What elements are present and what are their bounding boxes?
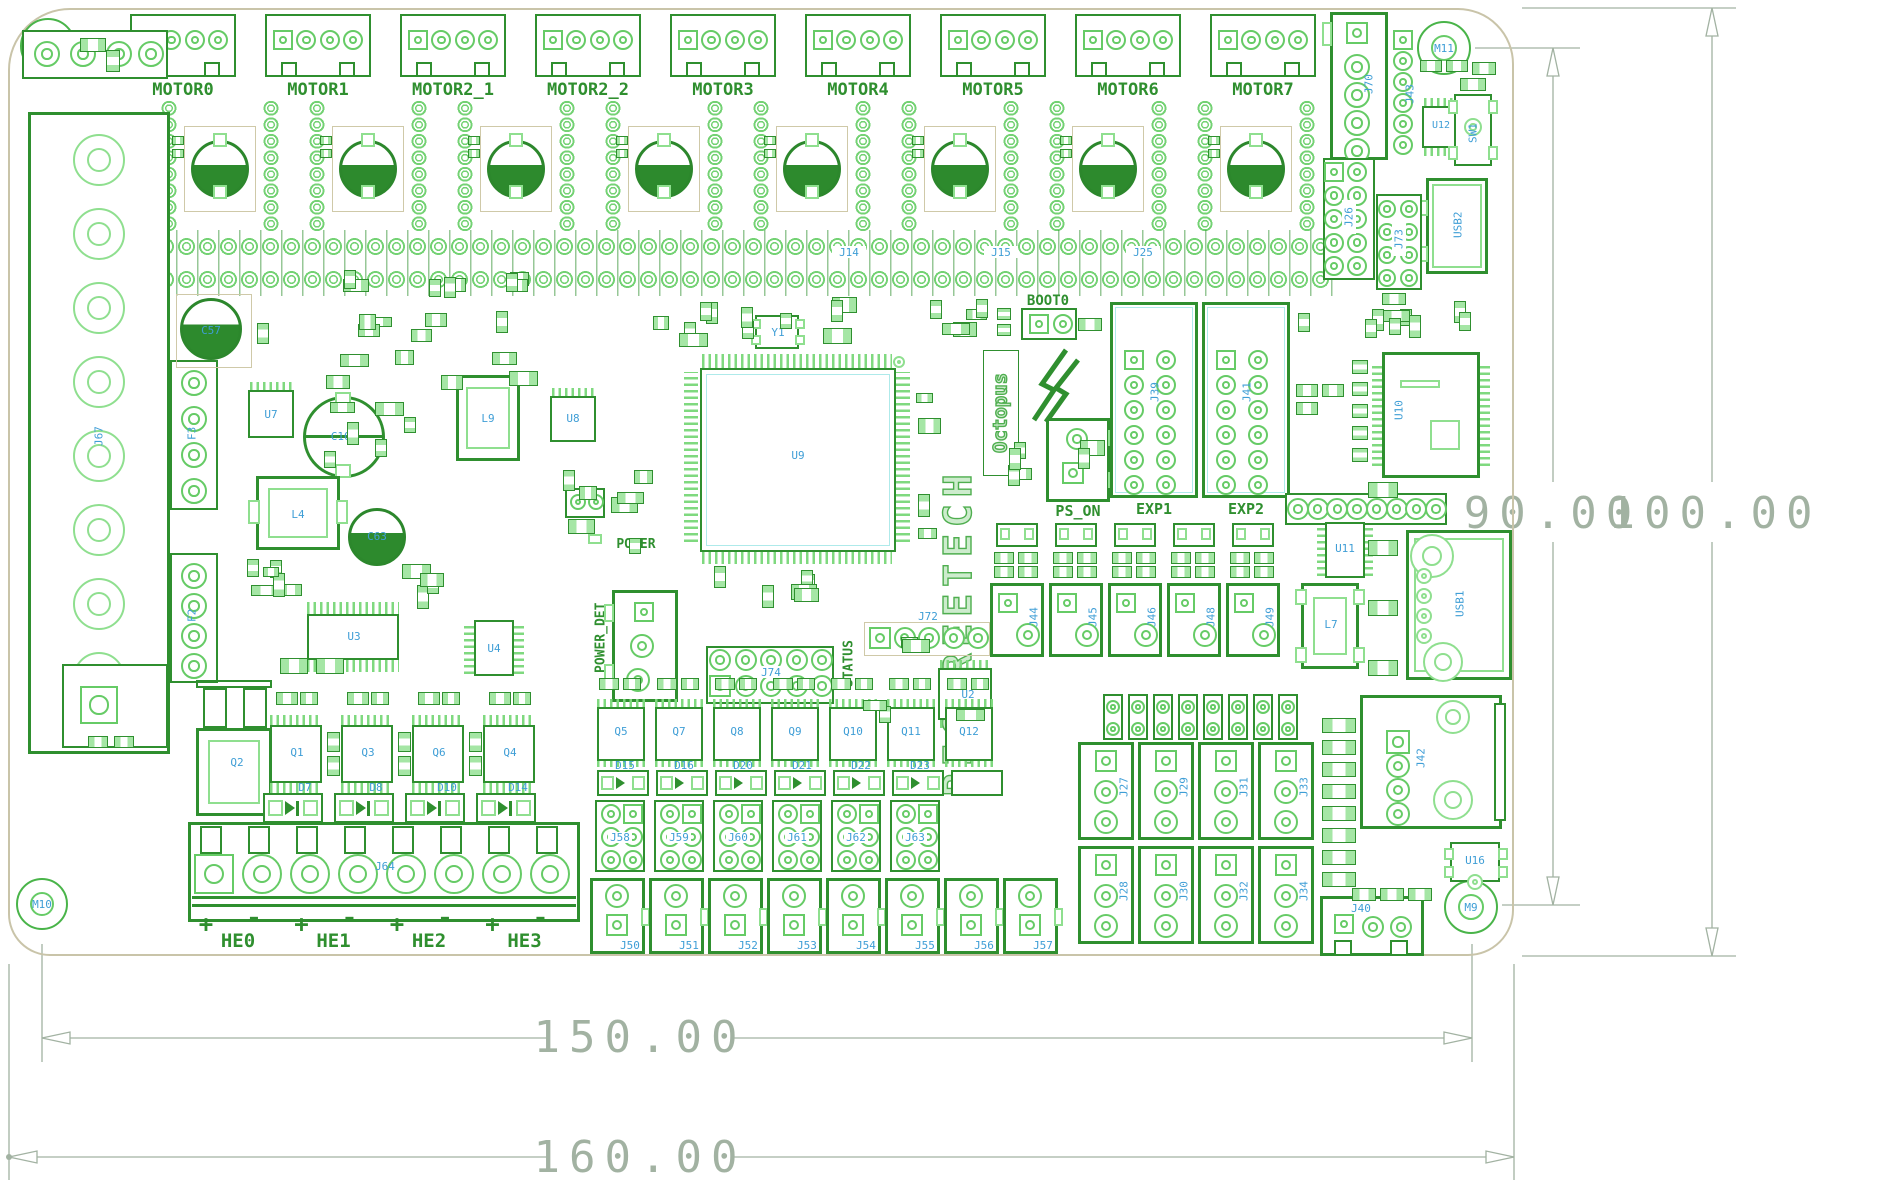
mosfet-pins [341,715,393,725]
mosfet-pins [597,699,645,707]
motor-pin-1 [813,30,833,50]
motor-connector-notch [744,62,760,77]
heater-polarity-plus: + [196,914,216,934]
smd-component [599,678,619,690]
diode-ref: D21 [790,760,814,770]
fan-output-pad [724,914,746,936]
smd-component-v [469,756,482,776]
motor-label: MOTOR2_2 [523,82,653,98]
smd-component [739,678,757,690]
diode-ref: D15 [613,760,637,770]
transistor-die [208,740,260,804]
smd-component-v [398,732,411,752]
smd-component [797,678,815,690]
smd-component [88,736,108,748]
header-ref: J73 [1392,222,1406,256]
motor-label: MOTOR2_1 [388,82,518,98]
mcu-pin1-marker [893,356,905,368]
power-terminal-hole [73,282,125,334]
smd-component [889,678,909,690]
ic-ref: U10 [1392,392,1406,428]
mounting-hole-ref: M10 [16,898,68,910]
endstop-pad [1155,750,1177,772]
header-pad [1324,162,1344,182]
smd-component [1322,740,1356,755]
header-ref: J72 [915,610,941,622]
fan-header-pin [601,804,621,824]
smd-component [1368,482,1398,498]
motor-connector-notch [416,62,432,77]
diode-pad [1201,528,1211,540]
smd-component [347,692,369,705]
diode-pad [339,800,354,816]
ic-pins [250,382,292,390]
endstop-ref: J30 [1178,874,1190,908]
smd-component-v [496,311,508,334]
motor-connector-notch [821,62,837,77]
endstop-pin [1154,914,1178,938]
ic-pins [1480,364,1490,466]
fan-output-pin [959,884,983,908]
fan-output-pin [664,884,688,908]
fan-header-pin [719,804,739,824]
fan-header-pin [896,804,916,824]
cap-ref: C57 [196,324,226,336]
ic-detail [1430,420,1460,450]
motor-pin [725,30,745,50]
ic-pins [514,622,524,674]
smd-component [441,375,463,389]
smd-component-v [714,566,726,588]
diode-glyph [427,801,437,815]
smd-component [1352,888,1376,901]
smd-component [359,314,376,330]
smd-component [320,149,332,158]
diode-pad [1177,528,1187,540]
smd-component [764,136,776,145]
smd-component [715,678,735,690]
diode-pad [927,776,940,790]
motor-connector-notch [551,62,567,77]
diode-pad [445,800,460,816]
motor-connector-notch [609,62,625,77]
heater-terminal-notch [296,826,318,854]
driver-socket-strip [1044,100,1070,232]
inductor-pad [1295,647,1307,663]
power-terminal-hole [73,578,125,630]
smd-component [657,678,677,690]
diode-pad [601,776,614,790]
diode-pad [632,776,645,790]
connector-ref: J70 [1362,66,1376,102]
endstop-ref: J32 [1238,874,1250,908]
thermistor-pad [1057,593,1077,613]
driver-socket-strip [1146,100,1172,232]
power-det-pin [630,634,654,658]
driver-socket-strip [452,100,478,232]
heater-terminal-hole [434,854,474,894]
heater-terminal-hole [482,854,522,894]
header-pin [1378,200,1396,218]
ic-ref: U7 [260,408,282,420]
heater-polarity-minus: - [531,908,551,928]
ic-pad [1444,848,1454,860]
smd-component [918,418,940,434]
endstop-pin [1154,780,1178,804]
usb-pin [1416,628,1432,644]
heater-polarity-plus: + [292,914,312,934]
smd-component [1208,149,1220,158]
smd-component [823,328,853,344]
mosfet-pins [713,699,761,707]
transistor-tab [243,688,267,728]
header-pin [1425,498,1447,520]
header-pin [1393,135,1413,155]
smd-component-v [506,273,518,292]
fan-header-pin [859,850,879,870]
smd-component [568,519,596,534]
smd-component-v [1352,448,1368,462]
motor-label: MOTOR1 [253,82,383,98]
smd-component [1171,552,1191,564]
fan-header-pin [837,804,857,824]
fan-header-pin [778,804,798,824]
motor-label: MOTOR6 [1063,82,1193,98]
exp-pin [1248,475,1268,495]
smd-component [1296,402,1318,415]
smd-component [300,692,318,705]
driver-socket-strip [1294,100,1320,232]
ic-ref: U16 [1460,854,1490,866]
smd-component [513,692,531,705]
diode-pad [374,800,389,816]
motor-pin [995,30,1015,50]
smd-component-v [347,422,359,445]
mosfet-pins [887,699,935,707]
motor-pin [1130,30,1150,50]
exp-pad [1124,350,1144,370]
driver-socket-strip [998,100,1024,232]
smd-component-v [762,585,774,608]
fan-output-ref: J55 [913,940,937,950]
exp-pin [1156,475,1176,495]
transistor-tab [203,688,227,728]
endstop-pad [1275,750,1297,772]
diode-glyph [675,777,684,789]
motor-label: MOTOR0 [118,82,248,98]
cap-tab [805,185,819,199]
cap-tab [361,133,375,147]
cap-tab [1249,185,1263,199]
smd-component-v [780,313,792,329]
smd-component [1195,552,1215,564]
smd-component [316,658,344,674]
smd-component [489,692,511,705]
motor-pin-1 [1218,30,1238,50]
probe-pin [1131,700,1145,714]
smd-component-v [563,470,575,490]
diode-pad [778,776,791,790]
smd-component [80,38,106,52]
header-pin [1324,186,1344,206]
fan-output-pin [841,884,865,908]
smd-component [1382,293,1406,305]
power-det-tab [604,604,614,622]
motor-pin [455,30,475,50]
mosfet-ref: Q6 [428,746,450,758]
smd-component-v [918,494,930,517]
motor-pin-1 [948,30,968,50]
connector-pad [1334,914,1354,934]
card-pin [1386,778,1410,802]
btt-logo-icon [1024,336,1084,428]
smd-component-v [1365,319,1377,338]
fan-header-ref: J61 [785,832,809,843]
diode-glyph [734,777,743,789]
fan-header-pin [660,850,680,870]
heater-terminal-pad [194,854,234,894]
smd-component [114,736,134,748]
thermistor-pad [1234,593,1254,613]
fuse-ref-F3: F3 [186,418,198,448]
smd-component-v [741,307,753,328]
endstop-pad [1095,854,1117,876]
exp-pin [1156,450,1176,470]
boot0-pad [1029,314,1049,334]
heater-label: HE2 [399,932,459,950]
switch-pad [1448,100,1458,114]
diode-pad [268,800,283,816]
smd-component-v [327,732,340,752]
smd-component [1472,62,1496,75]
diode-ref: D22 [849,760,873,770]
probe-pin [1156,722,1170,736]
smd-component-v [1352,404,1368,418]
diode-pad [481,800,496,816]
fan-output-pad [665,914,687,936]
smd-component [681,678,699,690]
card-ref: J42 [1414,738,1428,778]
exp-pin [1216,475,1236,495]
fuse-ref-F2: F2 [186,600,198,630]
boot0-pin [1053,314,1073,334]
fan-output-ref: J56 [972,940,996,950]
fan-output-pad [606,914,628,936]
connector-notch [1390,940,1408,956]
smd-component-v [1409,315,1421,338]
driver-socket-strip [258,100,284,232]
motor-pin [590,30,610,50]
smd-component [1195,566,1215,578]
smd-component [442,692,460,705]
diode-pad [1236,528,1246,540]
mosfet-pins [655,699,703,707]
header-pin [709,649,731,671]
smd-component [616,149,628,158]
header-ref: J26 [1342,200,1356,234]
cap-tab [805,133,819,147]
motor-connector-notch [1284,62,1300,77]
smd-component [1322,828,1356,843]
exp-pin [1216,375,1236,395]
ic-ref: U4 [484,642,504,654]
header-pin [1287,498,1309,520]
fan-header-pin [896,850,916,870]
header-pin [1347,256,1367,276]
usb-pin [1416,588,1432,604]
smd-component [375,402,404,416]
header-pin [1393,51,1413,71]
probe-pin [1231,700,1245,714]
smd-component-v [930,300,942,319]
smd-component [1322,762,1356,777]
thermistor-ref: J45 [1087,600,1099,634]
thermistor-ref: J44 [1028,600,1040,634]
cap-tab [953,185,967,199]
diode-glyph [793,777,802,789]
smd-component-v [997,324,1011,336]
header-pin [1347,233,1367,253]
endstop-ref: J28 [1118,874,1130,908]
exp-pin [1248,350,1268,370]
smd-component [794,588,819,602]
smd-component [395,350,414,365]
diode-ref: D8 [364,782,388,792]
cap-tab [213,185,227,199]
smd-component-v [1352,382,1368,396]
smd-component [1322,850,1356,865]
heater-terminal-notch [536,826,558,854]
header-pin [811,649,833,671]
smd-component-v [257,323,269,343]
mcu-ref: U9 [770,448,826,462]
usb-ref: USB2 [1450,202,1466,248]
driver-socket-strip [702,100,728,232]
smd-component [420,573,444,587]
smd-component [916,393,934,404]
mosfet-ref: Q11 [899,726,923,737]
motor-connector-notch [686,62,702,77]
ic-pins [1317,524,1325,576]
motor-connector-notch [1226,62,1242,77]
fan-header-pin [601,850,621,870]
thermistor-pad [1175,593,1195,613]
diode-glyph [498,801,508,815]
fan-output-pad [960,914,982,936]
fan-output-ref: J54 [854,940,878,950]
smd-component-v [324,451,336,469]
diode-pad [1083,528,1093,540]
smd-component [679,333,709,347]
smd-component [913,678,931,690]
cap-tab [657,185,671,199]
power-terminal-hole [73,504,125,556]
fan-header-ref: J58 [608,832,632,843]
smd-component [579,486,597,500]
diode-glyph [616,777,625,789]
ic-pins [1372,364,1382,466]
endstop-pin [1274,810,1298,834]
exp-pin [1124,450,1144,470]
driver-socket-strip [1192,100,1218,232]
motor-pin-1 [273,30,293,50]
diode-pad [837,776,850,790]
smd-component [1408,888,1432,901]
fan-header-pad [741,804,761,824]
probe-pin [1106,722,1120,736]
smd-component [1380,888,1404,901]
header-pin [1400,200,1418,218]
power-det-pad [634,602,654,622]
endstop-pin [1214,810,1238,834]
smd-component [280,658,308,674]
switch-ref: SW1 [1466,116,1480,150]
smd-component-v [1389,318,1401,335]
driver-socket-strip [304,100,330,232]
probe-pin [1131,722,1145,736]
diode-pad [1059,528,1069,540]
diode-ref: D23 [908,760,932,770]
endstop-ref: J34 [1298,874,1310,908]
fan-output-pad [901,914,923,936]
motor-pin-1 [408,30,428,50]
endstop-pad [1155,854,1177,876]
mosfet-pins [945,699,993,707]
mosfet-ref: Q8 [725,726,749,737]
smd-component [1077,552,1097,564]
smd-component [1322,384,1344,397]
smd-component [855,678,873,690]
endstop-ref: J33 [1298,770,1310,804]
ic-pad [1444,866,1454,878]
transistor-bar [196,680,272,688]
fan-header-pin [800,850,820,870]
smd-component-v [444,277,456,298]
card-pin [1386,802,1410,826]
inductor-ref: L9 [476,412,500,424]
header-pin [1324,209,1344,229]
header-pin [1324,233,1344,253]
diode-pad [1000,528,1010,540]
cap-ref: C104 [312,430,376,442]
diode-bar [296,801,299,816]
probe-pin [1231,722,1245,736]
driver-socket-strip [748,100,774,232]
smd-component [1368,660,1398,676]
smd-component [1060,149,1072,158]
smd-component-v [469,732,482,752]
heater-terminal-ref: J64 [372,860,398,872]
exp-label: EXP2 [1210,502,1282,516]
header-pin [1366,498,1388,520]
endstop-pin [1094,810,1118,834]
probe-pin [1181,722,1195,736]
smd-component [994,552,1014,564]
smd-component [1230,552,1250,564]
header-pin [1378,269,1396,287]
fan-output-tab [1054,908,1063,926]
inductor-ref: L4 [286,508,310,520]
heater-terminal-hole [530,854,570,894]
driver-row-ref: J15 [984,246,1018,258]
smd-component [172,136,184,145]
heater-polarity-plus: + [483,914,503,934]
smd-component-v [976,299,988,317]
diode-bar [438,801,441,816]
smd-component-v [1459,312,1471,331]
inductor-pad [1295,589,1307,605]
switch-pad [1448,146,1458,160]
